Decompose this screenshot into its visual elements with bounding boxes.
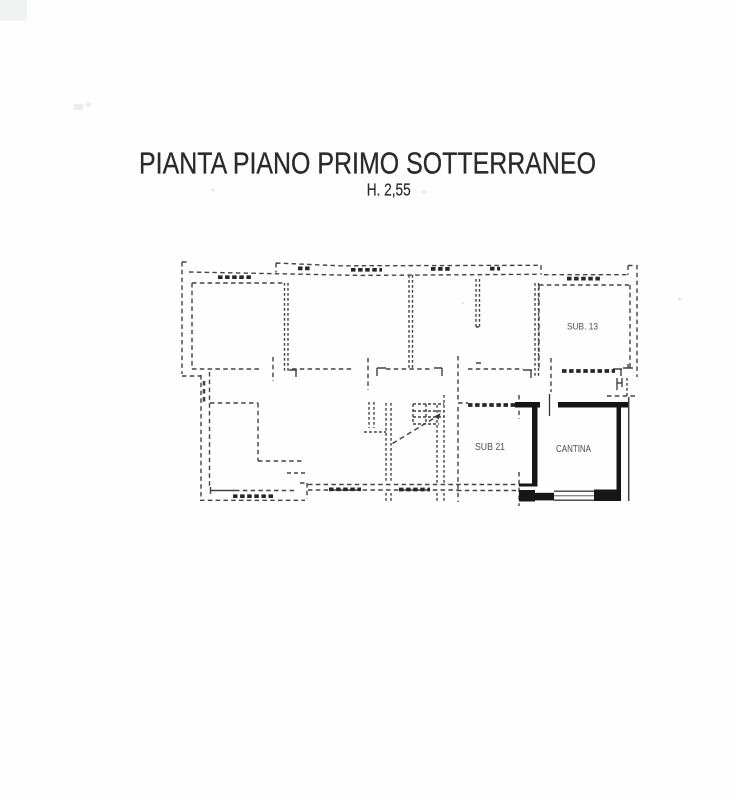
svg-text:CANTINA: CANTINA bbox=[556, 444, 591, 455]
svg-text:PIANTA PIANO PRIMO SOTTERRANEO: PIANTA PIANO PRIMO SOTTERRANEO bbox=[139, 147, 596, 181]
svg-text:H. 2,55: H. 2,55 bbox=[367, 180, 411, 200]
svg-text:SUB. 13: SUB. 13 bbox=[567, 322, 598, 333]
svg-text:SUB 21: SUB 21 bbox=[475, 442, 505, 453]
